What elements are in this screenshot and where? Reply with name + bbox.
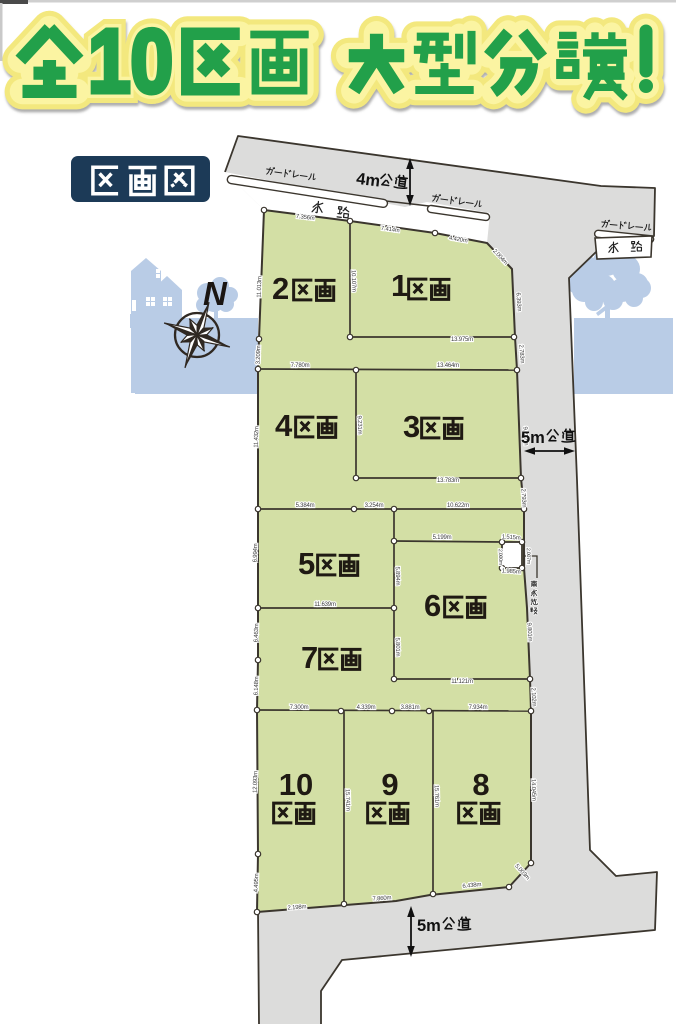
svg-text:12.093m: 12.093m [253, 771, 260, 793]
svg-text:13.464m: 13.464m [437, 363, 459, 369]
svg-text:3.254m: 3.254m [365, 503, 384, 509]
svg-text:10.622m: 10.622m [447, 503, 469, 509]
svg-text:15.741m: 15.741m [344, 789, 351, 811]
svg-text:4m: 4m [355, 170, 381, 191]
svg-text:10.107m: 10.107m [350, 270, 357, 292]
svg-text:7: 7 [301, 640, 318, 675]
svg-text:6.994m: 6.994m [253, 543, 260, 562]
svg-text:7.780m: 7.780m [291, 363, 310, 369]
svg-text:9: 9 [381, 767, 398, 802]
svg-text:2: 2 [272, 271, 289, 306]
svg-text:14.045m: 14.045m [530, 779, 537, 801]
svg-text:4.495m: 4.495m [254, 873, 261, 892]
svg-text:6: 6 [424, 588, 441, 623]
svg-text:6.463m: 6.463m [254, 623, 261, 642]
svg-text:11.121m: 11.121m [451, 679, 473, 685]
svg-text:7.300m: 7.300m [290, 705, 309, 711]
svg-text:9.231m: 9.231m [356, 415, 363, 434]
svg-text:7.934m: 7.934m [469, 705, 488, 711]
svg-text:5m: 5m [521, 429, 545, 447]
svg-text:13.783m: 13.783m [437, 478, 459, 484]
svg-text:6.148m: 6.148m [254, 676, 261, 695]
svg-text:2.000m: 2.000m [497, 549, 504, 565]
svg-text:3.209m: 3.209m [256, 345, 263, 364]
svg-text:13.975m: 13.975m [451, 337, 473, 343]
svg-text:1: 1 [391, 268, 408, 303]
svg-text:3.881m: 3.881m [401, 705, 420, 711]
svg-text:5.801m: 5.801m [394, 637, 401, 656]
svg-text:5.199m: 5.199m [433, 535, 452, 541]
svg-text:5: 5 [298, 546, 315, 581]
svg-text:11.639m: 11.639m [314, 602, 336, 608]
svg-text:5.894m: 5.894m [394, 566, 401, 585]
svg-text:4: 4 [275, 408, 293, 443]
svg-text:2.793m: 2.793m [520, 488, 527, 507]
svg-text:10: 10 [279, 767, 313, 802]
svg-text:5m: 5m [417, 917, 441, 935]
svg-text:5.384m: 5.384m [296, 503, 315, 509]
svg-text:11.432m: 11.432m [254, 426, 261, 448]
svg-text:4.339m: 4.339m [357, 705, 376, 711]
svg-text:9.801m: 9.801m [526, 622, 533, 641]
svg-text:2.102m: 2.102m [530, 687, 537, 706]
svg-text:8: 8 [472, 767, 489, 802]
svg-text:15.761m: 15.761m [433, 785, 440, 807]
svg-text:2.007m: 2.007m [525, 548, 532, 564]
svg-text:10: 10 [88, 10, 173, 111]
svg-text:11.013m: 11.013m [257, 276, 264, 298]
svg-text:3: 3 [403, 409, 420, 444]
